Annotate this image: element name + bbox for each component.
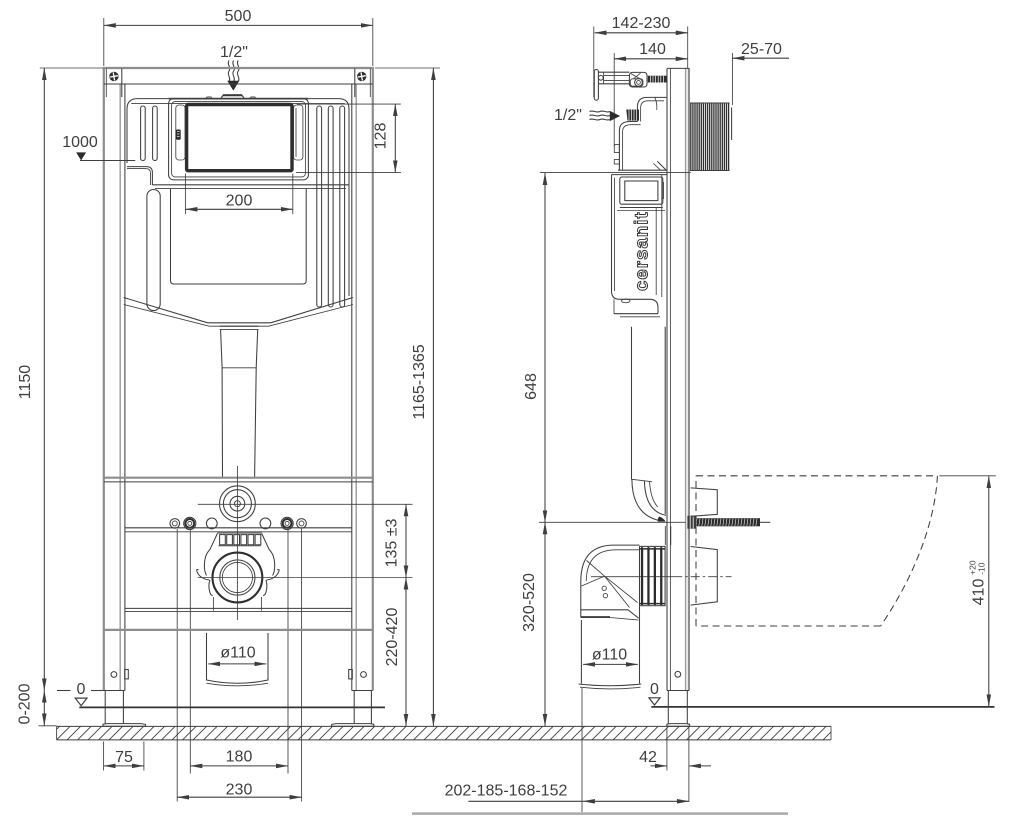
svg-text:1/2": 1/2" <box>220 44 248 61</box>
svg-text:ø110: ø110 <box>220 645 255 662</box>
svg-text:0-200: 0-200 <box>17 683 34 724</box>
svg-text:135 ±3: 135 ±3 <box>384 518 401 567</box>
svg-text:500: 500 <box>225 8 252 25</box>
svg-text:0: 0 <box>77 681 86 698</box>
svg-text:1000: 1000 <box>62 134 98 151</box>
svg-text:220-420: 220-420 <box>384 608 401 667</box>
svg-text:-10: -10 <box>976 562 986 575</box>
svg-text:ø110: ø110 <box>592 647 627 664</box>
svg-text:1150: 1150 <box>17 365 34 400</box>
svg-text:142-230: 142-230 <box>612 15 671 32</box>
svg-text:230: 230 <box>226 782 253 799</box>
svg-text:1165-1365: 1165-1365 <box>411 344 428 419</box>
svg-text:140: 140 <box>639 41 666 58</box>
svg-text:75: 75 <box>115 749 133 766</box>
svg-text:180: 180 <box>226 749 253 766</box>
svg-text:648: 648 <box>523 373 540 400</box>
svg-text:1/2": 1/2" <box>554 107 582 124</box>
svg-text:42: 42 <box>639 749 657 766</box>
svg-text:25-70: 25-70 <box>741 41 782 58</box>
svg-text:128: 128 <box>373 123 390 150</box>
svg-text:320-520: 320-520 <box>521 573 538 632</box>
svg-text:410: 410 <box>971 579 988 606</box>
svg-text:202-185-168-152: 202-185-168-152 <box>445 783 568 800</box>
svg-text:0: 0 <box>650 681 659 698</box>
svg-text:cersanit: cersanit <box>631 211 652 291</box>
svg-text:200: 200 <box>226 193 253 210</box>
